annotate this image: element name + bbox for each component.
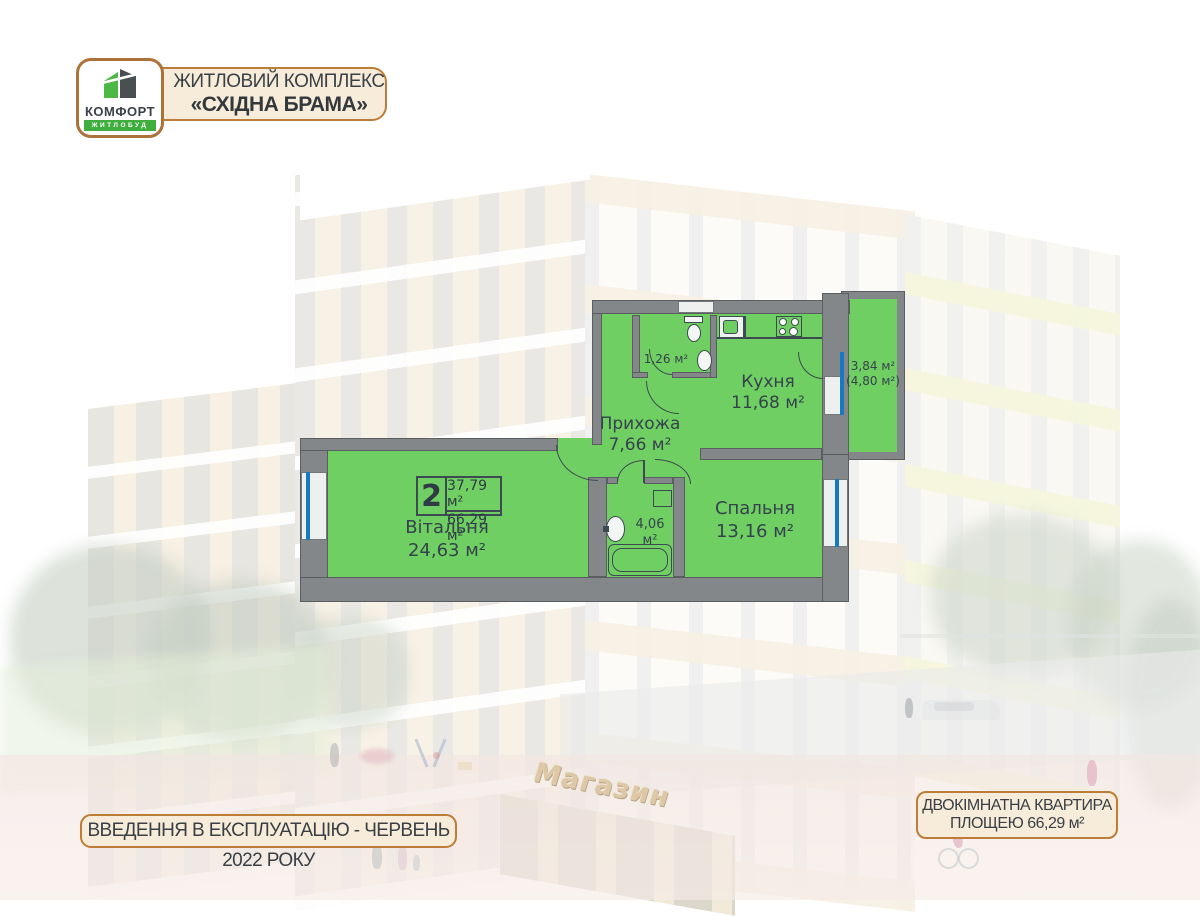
- room-name: Вітальня: [377, 517, 517, 540]
- apartment-badge-line2: ПЛОЩЕЮ 66,29 м²: [918, 815, 1116, 833]
- counter-line: [717, 337, 822, 339]
- balcony-window: [824, 376, 841, 415]
- wall-wc-right: [710, 315, 717, 378]
- balcony-window-glass: [840, 352, 844, 415]
- room-name: Кухня: [718, 372, 818, 393]
- balcony-area-full: (4,80 м²): [845, 374, 901, 389]
- room-label-hallway: Прихожа 7,66 м²: [590, 414, 690, 457]
- room-label-balcony: 3,84 м² (4,80 м²): [845, 359, 901, 389]
- wall-living-top: [300, 438, 558, 451]
- bicycle-wheel: [958, 848, 979, 869]
- toilet-icon: [684, 316, 703, 323]
- apartment-badge: ДВОКІМНАТНА КВАРТИРА ПЛОЩЕЮ 66,29 м²: [916, 791, 1118, 839]
- vent-duct: [653, 490, 672, 507]
- room-label-wc: 1,26 м²: [643, 352, 689, 367]
- toilet-icon: [687, 324, 701, 342]
- room-label-bedroom: Спальня 13,16 м²: [695, 498, 815, 543]
- person: [398, 846, 407, 870]
- commissioning-badge: ВВЕДЕННЯ В ЕКСПЛУАТАЦІЮ - ЧЕРВЕНЬ 2022 Р…: [80, 814, 457, 848]
- complex-badge-line2: «СХІДНА БРАМА»: [191, 93, 368, 117]
- apartment-badge-line1: ДВОКІМНАТНА КВАРТИРА: [918, 797, 1116, 815]
- wall-bath-right: [673, 477, 685, 577]
- bicycle-wheel: [938, 848, 959, 869]
- complex-badge: ЖИТЛОВИЙ КОМПЛЕКС «СХІДНА БРАМА»: [125, 67, 387, 121]
- person: [905, 698, 913, 718]
- wall-top-exterior: [592, 300, 850, 314]
- logo-sub-bar: ЖИТЛОБУД: [84, 120, 156, 131]
- room-label-living: Вітальня 24,63 м²: [377, 517, 517, 562]
- stove-burner: [791, 318, 799, 326]
- buildings-icon: [99, 66, 141, 104]
- poster: { "header": { "logo": { "brand": "КОМФОР…: [0, 0, 1200, 900]
- room-area: 13,16 м²: [695, 521, 815, 544]
- complex-badge-line1: ЖИТЛОВИЙ КОМПЛЕКС: [173, 71, 384, 93]
- swing-seat: [433, 752, 440, 759]
- logo: КОМФОРТ ЖИТЛОБУД: [76, 58, 164, 138]
- sandbox: [458, 762, 472, 770]
- wall-wc-bottom-a: [632, 372, 648, 378]
- person: [1087, 760, 1097, 786]
- living-window-glass: [306, 472, 310, 540]
- wall-bottom-exterior: [300, 577, 849, 602]
- room-area: 7,66 м²: [590, 435, 690, 456]
- room-area: 24,63 м²: [377, 540, 517, 563]
- stove-burner: [779, 318, 787, 326]
- car: [922, 700, 1000, 720]
- living-window: [301, 472, 327, 540]
- wall-bedroom-top: [700, 448, 822, 460]
- bath-sink-faucet: [603, 526, 609, 532]
- stove-burner: [779, 328, 786, 335]
- person: [413, 855, 420, 871]
- car-windows: [934, 702, 974, 711]
- counter-line: [744, 316, 746, 338]
- fence-line: [900, 634, 1200, 638]
- room-name: Спальня: [695, 498, 815, 521]
- wall-wc-bottom-b: [672, 372, 712, 378]
- room-label-kitchen: Кухня 11,68 м²: [718, 372, 818, 415]
- entrance-opening: [678, 301, 714, 313]
- bedroom-window-glass: [835, 479, 839, 547]
- room-label-bathroom: 4,06 м²: [628, 517, 672, 550]
- living-area-sum: 37,79 м²: [447, 478, 500, 512]
- kitchen-sink-icon: [723, 320, 738, 334]
- person: [330, 743, 339, 767]
- unit-number: 2: [418, 478, 447, 514]
- logo-sub: ЖИТЛОБУД: [92, 122, 149, 129]
- wall-wc-left: [632, 315, 640, 373]
- balcony-area: 3,84 м²: [845, 359, 901, 374]
- stove-burner: [789, 327, 798, 336]
- bathroom-door-leaf: [643, 460, 645, 483]
- flowers: [360, 748, 394, 764]
- logo-brand: КОМФОРТ: [85, 104, 155, 119]
- room-area: 11,68 м²: [718, 393, 818, 414]
- room-name: Прихожа: [590, 414, 690, 435]
- unit-info-box: 2 37,79 м² 66,29 м²: [416, 476, 502, 516]
- wc-sink-icon: [697, 350, 712, 371]
- bathtub-icon: [612, 548, 668, 572]
